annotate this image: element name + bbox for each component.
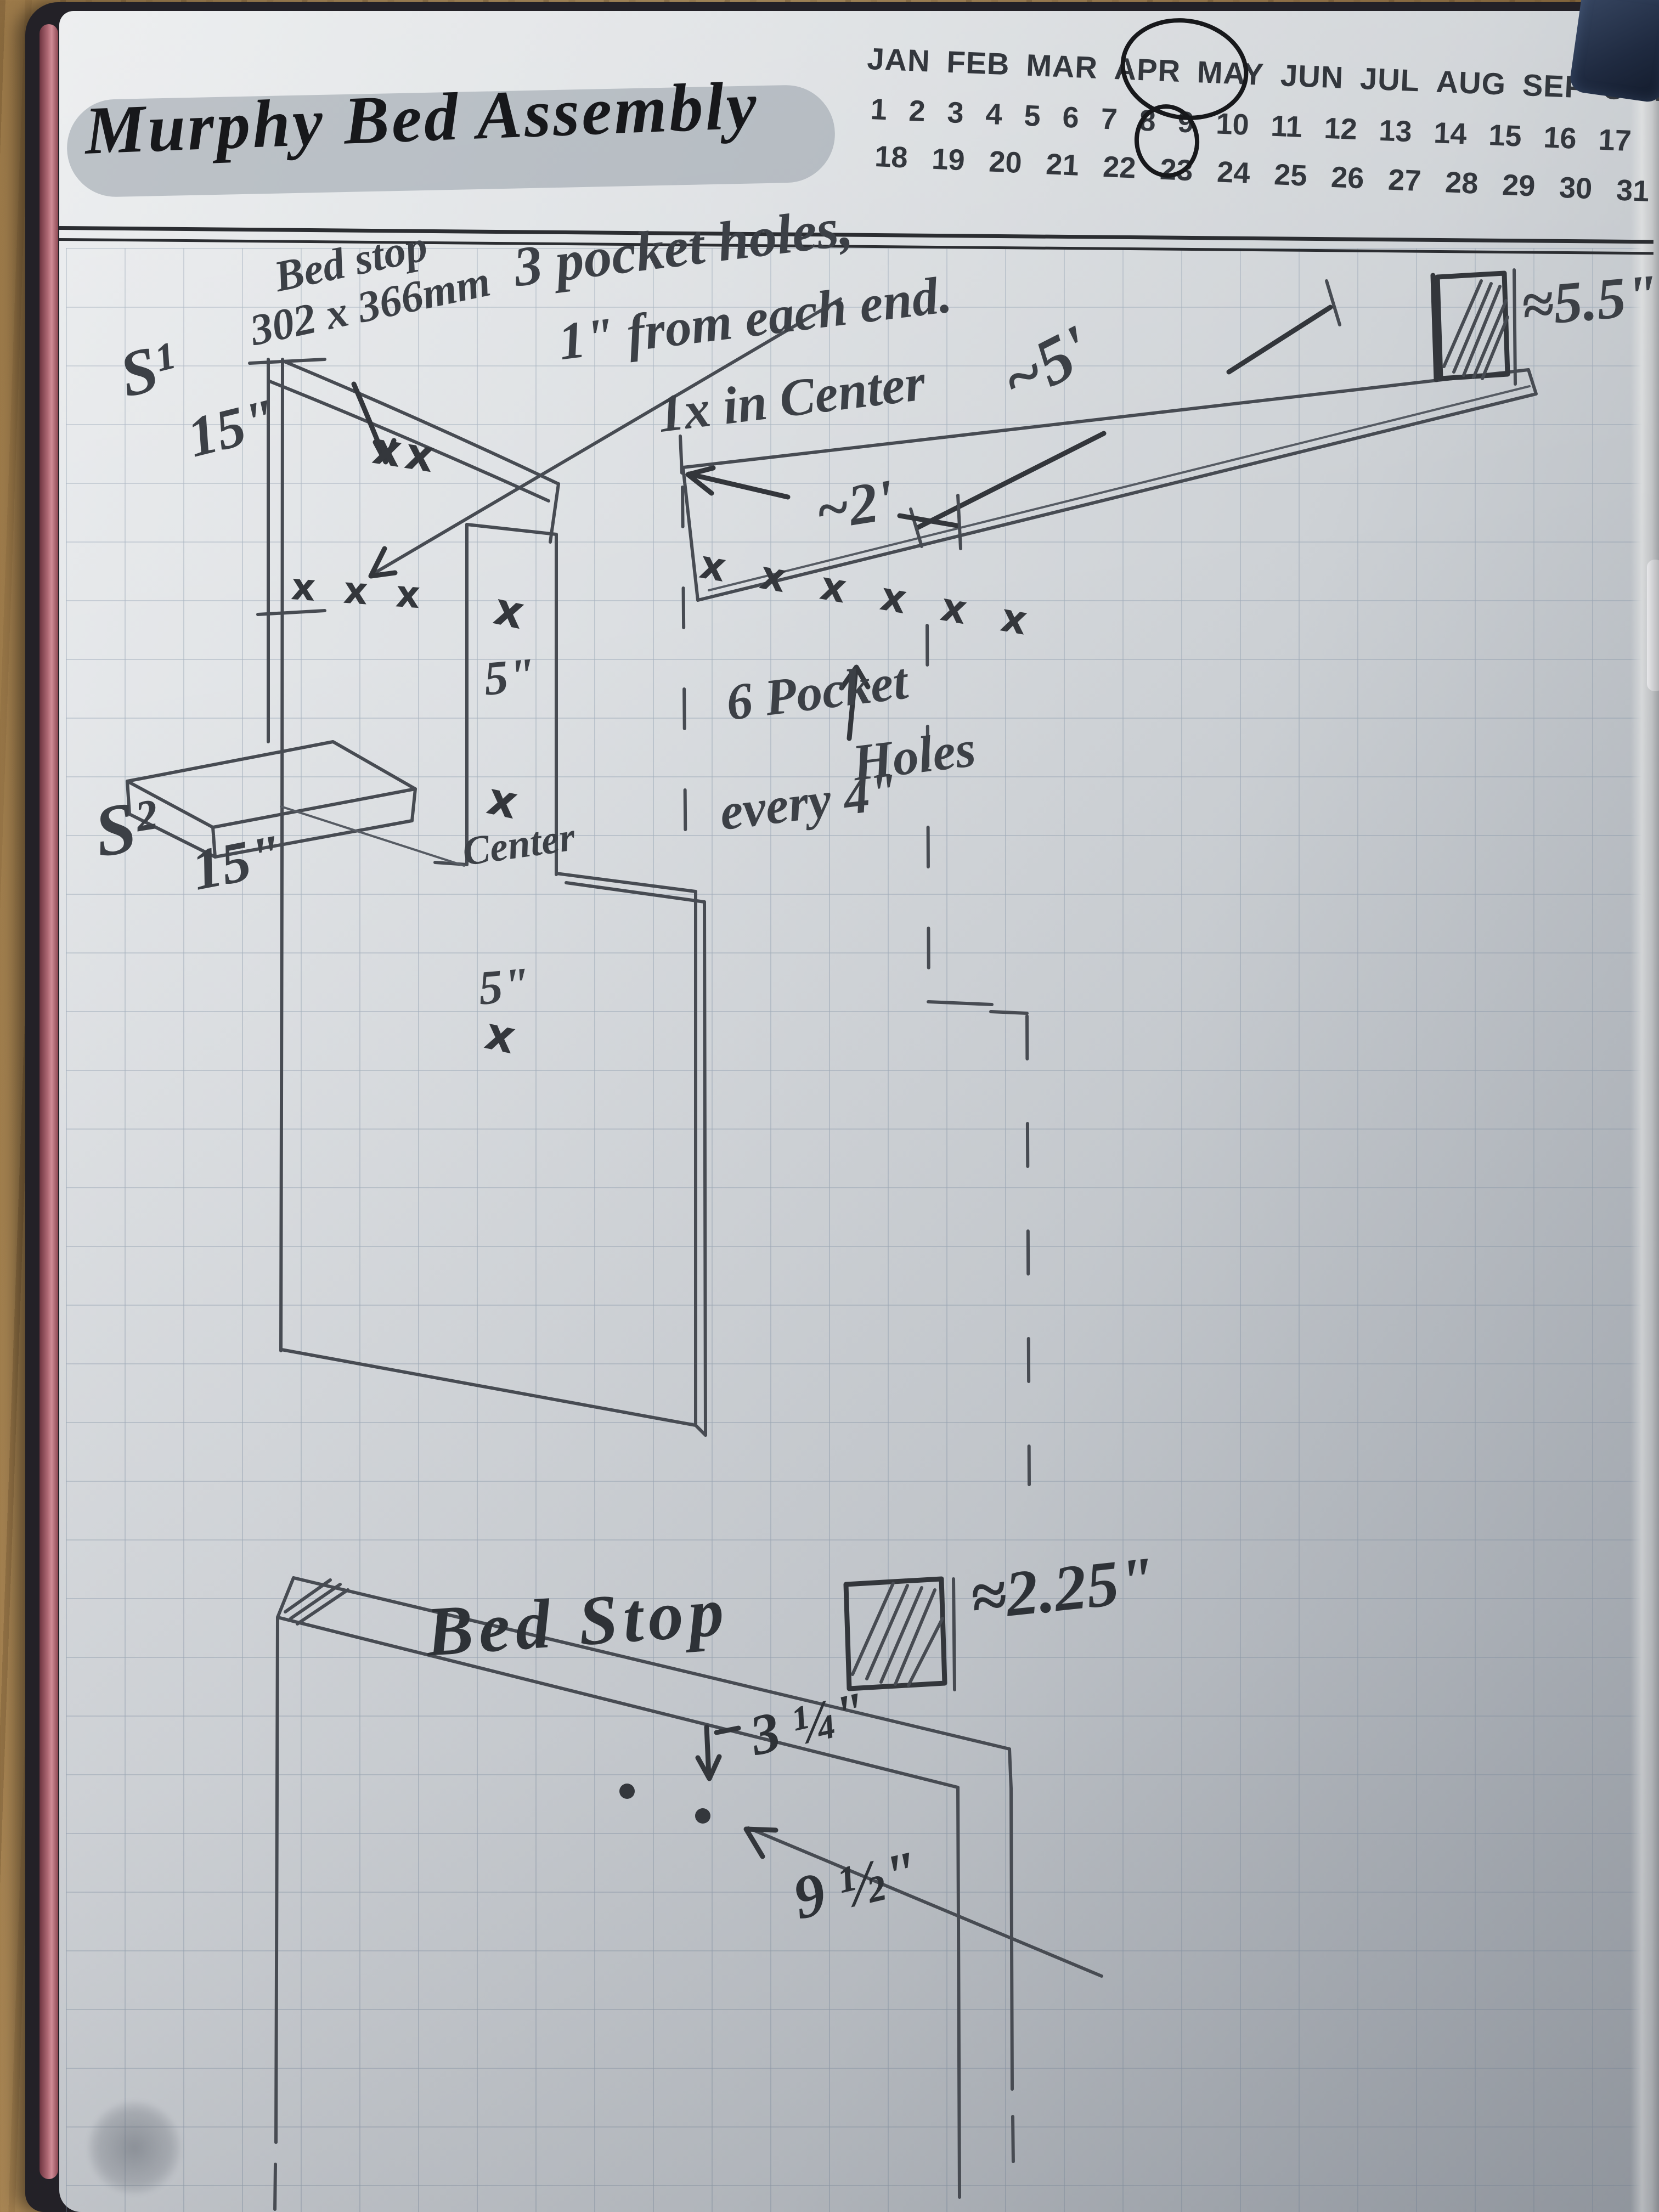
binder-clip xyxy=(1568,0,1659,104)
plank-end-hatch-icon xyxy=(1433,270,1515,384)
label-headboard-length: ~2' xyxy=(811,466,899,545)
label-side2: S² xyxy=(89,781,163,874)
pen-clip-edge xyxy=(1647,560,1659,691)
label-plank-width: ≈5.5" xyxy=(1519,261,1659,340)
notebook-photo: { "page": { "title": "Murphy Bed Assembl… xyxy=(0,0,1659,2212)
bed-stop-hatch-icon xyxy=(846,1579,955,1690)
label-strip-dim-top: 5" xyxy=(482,647,537,707)
drill-hole-dot xyxy=(695,1808,710,1824)
label-strip-dim-bottom: 5" xyxy=(476,957,532,1017)
drill-hole-dot xyxy=(619,1784,635,1799)
hidden-edge-dashes xyxy=(682,487,1029,1485)
mark-pocket-pair: xx xyxy=(369,422,442,483)
